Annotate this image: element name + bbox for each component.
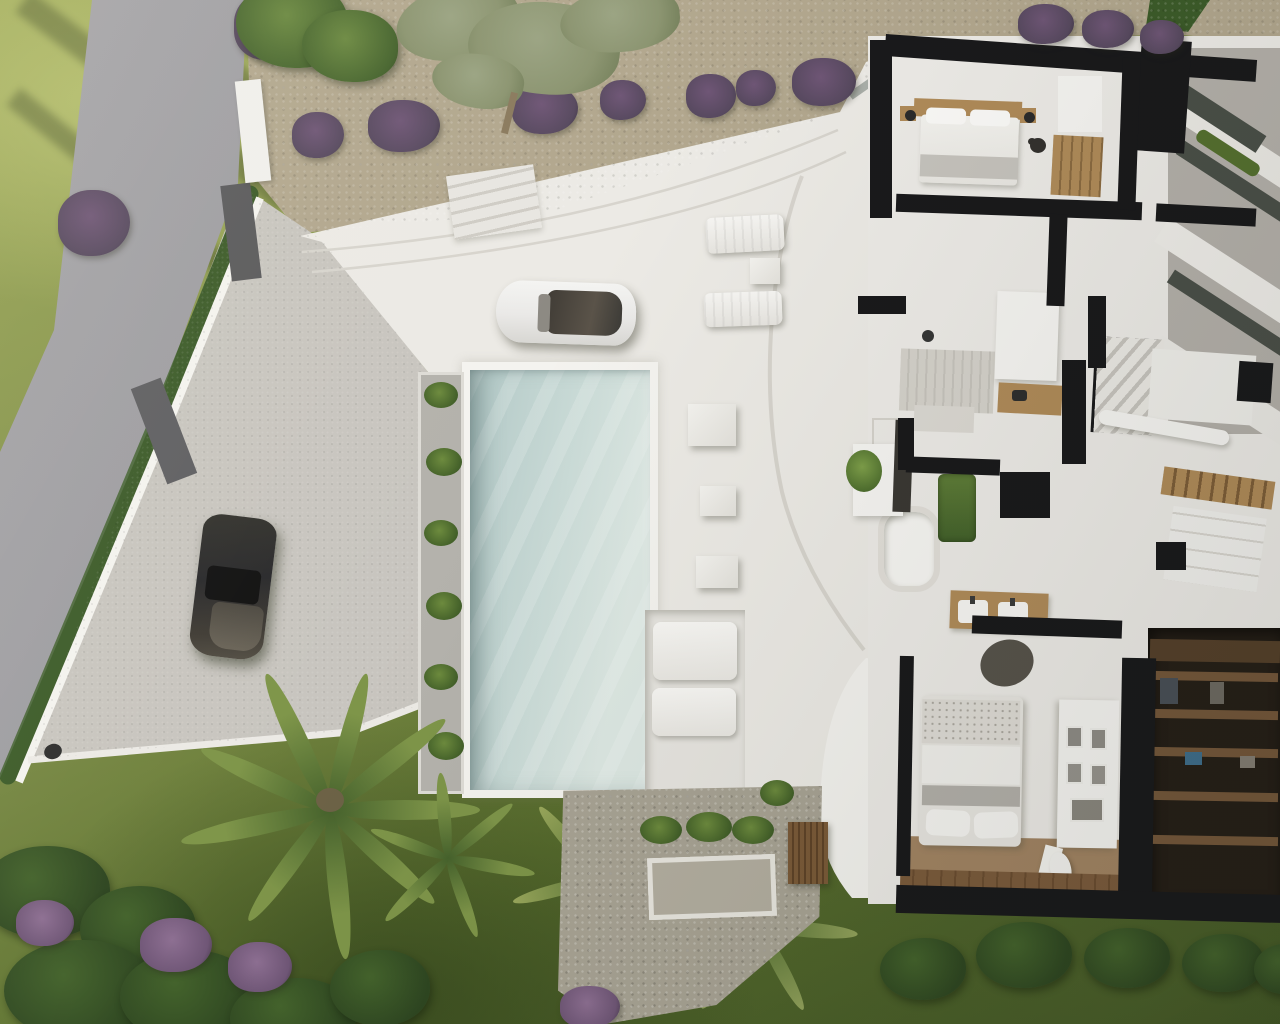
bathtub — [878, 506, 940, 592]
picture-frame — [1090, 764, 1107, 786]
vanity-tap — [970, 596, 975, 604]
closet-clothes-item — [1240, 756, 1255, 768]
bed-lower-sheet — [922, 745, 1021, 785]
closet-clothes-item — [1160, 678, 1178, 704]
wall-center-upper — [1046, 214, 1067, 307]
wall-bath-left-stub — [898, 418, 914, 470]
wall-top-right-chunk — [1134, 38, 1192, 153]
wall-center-spine — [1062, 360, 1086, 464]
bed-lower-pillow — [925, 809, 970, 837]
pebble-inner-pad — [647, 854, 777, 920]
vanity-shelf — [997, 382, 1062, 415]
tree-canopy — [302, 10, 398, 82]
corner-plant — [760, 780, 794, 806]
wall-right-small — [1156, 542, 1186, 570]
wall-stub-left — [858, 296, 906, 314]
hallway-shelf-unit — [1058, 76, 1102, 132]
hedge-bush — [1084, 928, 1170, 988]
sun-lounger — [703, 291, 782, 328]
walk-in-closet — [1148, 628, 1280, 902]
picture-frame — [1066, 762, 1083, 784]
white-car-windshield — [537, 294, 550, 332]
vanity-sink-dark — [1012, 390, 1027, 401]
hedge-bush — [1182, 934, 1264, 992]
bed-lower-quilt — [922, 699, 1021, 745]
step-cube — [700, 486, 736, 516]
planter-row-plant — [732, 816, 774, 844]
planter-shrub — [424, 520, 458, 546]
picture-frame — [1090, 728, 1107, 750]
wardrobe-top — [1050, 135, 1103, 198]
planter-row-plant — [686, 812, 732, 842]
sun-lounger — [705, 214, 785, 254]
palm-crown — [316, 788, 344, 812]
garden-bush — [330, 950, 430, 1024]
bedside-lamp — [905, 110, 916, 121]
picture-frame — [1066, 726, 1083, 748]
step-cube — [688, 404, 736, 446]
black-suv-windshield — [204, 565, 262, 605]
wall-lowerbed-right — [1118, 658, 1156, 905]
bed-lower-band — [922, 785, 1020, 807]
planter-shrub — [424, 664, 458, 690]
swimming-pool — [470, 370, 650, 790]
flower-patch — [560, 986, 620, 1024]
closet-top-shelf — [1150, 639, 1280, 663]
bed-pillow — [926, 107, 967, 124]
bed-pillow — [970, 109, 1011, 126]
wall-mid-horizontal — [906, 456, 1001, 475]
hedge-bush — [976, 922, 1072, 988]
pendant-lamp — [1030, 138, 1046, 153]
shower-head — [922, 330, 934, 342]
step-cube — [696, 556, 738, 588]
picture-frame — [1070, 798, 1104, 822]
vanity-tap — [1010, 598, 1015, 606]
wall-left — [870, 40, 892, 218]
entrance-plant — [846, 450, 882, 492]
bed-throw-blanket — [920, 154, 1019, 179]
architectural-render — [0, 0, 1280, 1024]
bathroom-plant-box — [938, 474, 976, 542]
wall-right-chunk — [1237, 361, 1274, 403]
bed-lower-pillow — [974, 811, 1019, 839]
wall-center-chunk — [1000, 472, 1050, 518]
bedside-lamp — [1024, 112, 1035, 123]
lounge-mattress — [652, 688, 736, 736]
shower-tiles — [899, 348, 995, 413]
black-suv-hood — [207, 601, 264, 653]
lounge-mattress — [653, 622, 737, 680]
lounger-side-table — [750, 258, 780, 284]
closet-clothes-item — [1185, 752, 1202, 765]
planter-row-plant — [640, 816, 682, 844]
hedge-bush — [880, 938, 966, 1000]
planter-shrub — [426, 448, 462, 476]
closet-clothes-item — [1210, 682, 1224, 704]
planter-shrub — [424, 382, 458, 408]
wood-slat-screen — [788, 822, 828, 884]
garden-steps — [446, 164, 542, 240]
planter-shrub — [426, 592, 462, 620]
wall-center-small — [1088, 296, 1106, 368]
shower-bench — [914, 405, 975, 433]
white-car-glass-roof — [545, 290, 622, 337]
